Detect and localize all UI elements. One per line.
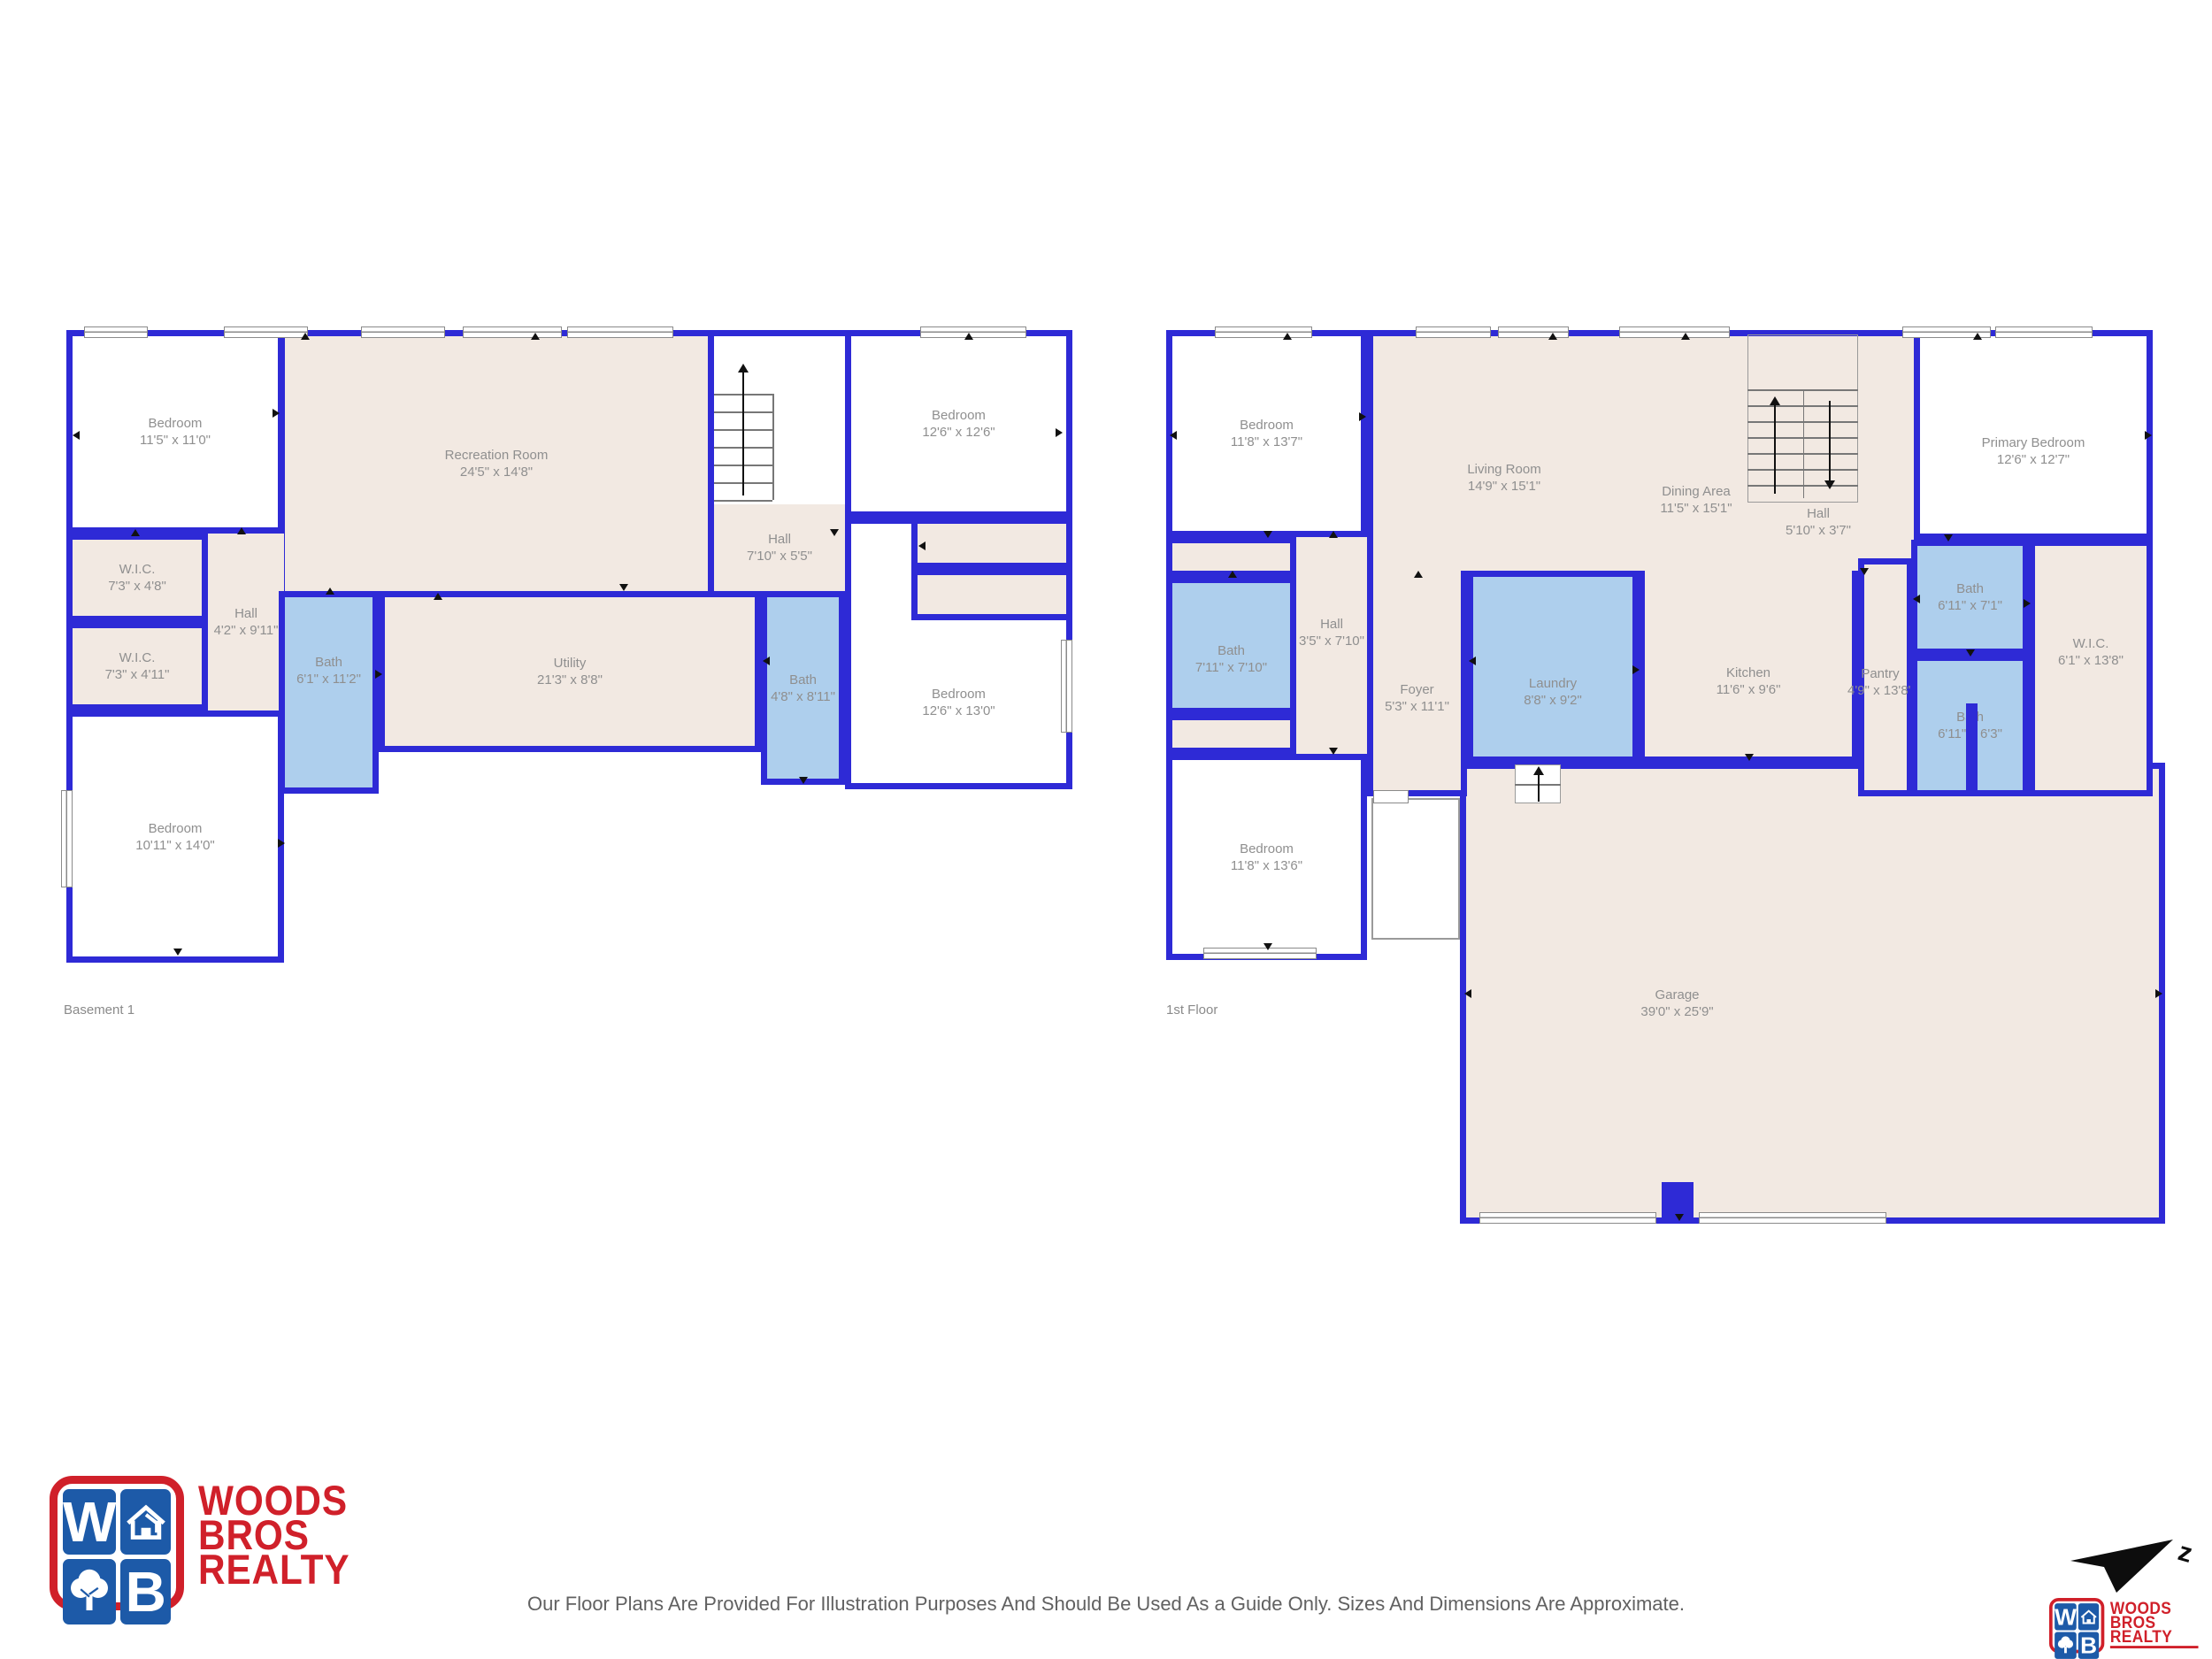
window-icon <box>1995 326 2093 338</box>
window-icon <box>1699 1212 1886 1224</box>
door-arrow-icon <box>1966 649 1975 657</box>
room-label: Primary Bedroom12'6" x 12'7" <box>1982 434 2085 468</box>
garage-room: Garage39'0" x 25'9" <box>1460 763 2165 1224</box>
window-icon <box>84 326 148 338</box>
door-arrow-icon <box>301 333 310 340</box>
room-name: Laundry <box>1524 675 1582 692</box>
window-icon <box>1215 326 1312 338</box>
room-dimensions: 11'5" x 11'0" <box>140 432 211 449</box>
room-label: Recreation Room24'5" x 14'8" <box>445 447 549 480</box>
door-arrow-icon <box>273 409 280 418</box>
door-arrow-icon <box>237 527 246 534</box>
logo-letter-w: W <box>63 1489 116 1555</box>
room-name: Hall <box>1299 616 1364 633</box>
woods-bros-logo: W B WOODS BROS REALTY <box>50 1476 367 1610</box>
door-arrow-icon <box>1263 943 1272 950</box>
room-label: Bedroom10'11" x 14'0" <box>135 820 215 854</box>
logo-letter-w: W <box>2055 1603 2077 1630</box>
room-label: Bedroom12'6" x 13'0" <box>922 686 995 719</box>
room-label: W.I.C.6'1" x 13'8" <box>2058 635 2124 669</box>
room-label: Bath6'11" x 7'1" <box>1938 580 2002 614</box>
wall-segment <box>1966 703 1978 792</box>
door-arrow-icon <box>1944 534 1953 541</box>
room-name: Living Room <box>1467 461 1540 478</box>
door-arrow-icon <box>964 333 973 340</box>
room-dimensions: 5'3" x 11'1" <box>1385 698 1449 715</box>
room-label: Bedroom11'8" x 13'6" <box>1231 841 1302 874</box>
room-label: Bath6'1" x 11'2" <box>296 654 361 687</box>
room-dimensions: 39'0" x 25'9" <box>1640 1003 1713 1020</box>
window-icon <box>61 790 73 887</box>
door-arrow-icon <box>2155 989 2162 998</box>
bedroom-room: Bedroom11'8" x 13'7" <box>1166 330 1367 537</box>
closet-area <box>714 330 845 504</box>
room-name: Bedroom <box>922 407 995 424</box>
door-arrow-icon <box>434 593 442 600</box>
window-icon <box>361 326 445 338</box>
window-icon <box>1619 326 1730 338</box>
window-icon <box>1203 948 1317 959</box>
room-dimensions: 4'9" x 13'8" <box>1847 682 1913 699</box>
closet-area <box>911 569 1072 620</box>
stair-arrow-line <box>1829 401 1831 485</box>
room-name: W.I.C. <box>105 649 170 666</box>
room-name: Primary Bedroom <box>1982 434 2085 451</box>
bedroom-room: Bedroom11'5" x 11'0" <box>66 330 284 534</box>
room-label: Utility21'3" x 8'8" <box>537 655 603 688</box>
room-dimensions: 11'5" x 15'1" <box>1660 500 1732 517</box>
room-dimensions: 21'3" x 8'8" <box>537 672 603 688</box>
room-name: W.I.C. <box>2058 635 2124 652</box>
room-label: Bedroom11'5" x 11'0" <box>140 415 211 449</box>
door-arrow-icon <box>1228 571 1237 578</box>
room-dimensions: 7'3" x 4'11" <box>105 666 170 683</box>
window-icon <box>1479 1212 1656 1224</box>
compass-letter: z <box>2175 1537 2196 1569</box>
room-name: Bedroom <box>1231 841 1302 857</box>
room-label: Hall7'10" x 5'5" <box>747 531 812 565</box>
bath-room: Bath4'8" x 8'11" <box>761 591 845 785</box>
bath-room: Bath6'11" x 7'1" <box>1911 540 2029 655</box>
room-name: Bedroom <box>140 415 211 432</box>
room-dimensions: 12'6" x 12'7" <box>1982 451 2085 468</box>
door-arrow-icon <box>1681 333 1690 340</box>
door-arrow-icon <box>1632 665 1640 674</box>
w-i-c-room: W.I.C.7'3" x 4'11" <box>66 622 208 710</box>
room-dimensions: 7'3" x 4'8" <box>108 578 166 595</box>
door-arrow-icon <box>278 839 285 848</box>
room-dimensions: 7'10" x 5'5" <box>747 548 812 565</box>
room-name: Kitchen <box>1717 664 1781 681</box>
window-icon <box>1416 326 1491 338</box>
door-arrow-icon <box>531 333 540 340</box>
room-name: Bath <box>296 654 361 671</box>
room-label: Bedroom11'8" x 13'7" <box>1231 417 1302 450</box>
foyer-room: Foyer5'3" x 11'1" <box>1367 571 1467 796</box>
stair-rail <box>772 394 774 500</box>
logo-house-icon <box>120 1489 171 1555</box>
room-name: Bath <box>1938 580 2002 597</box>
door-arrow-icon <box>1548 333 1557 340</box>
room-dimensions: 6'1" x 11'2" <box>296 671 361 687</box>
entry-stoop <box>1371 798 1460 940</box>
door-arrow-icon <box>619 584 628 591</box>
stair-arrow-icon <box>738 364 749 373</box>
door-arrow-icon <box>1056 428 1063 437</box>
room-dimensions: 10'11" x 14'0" <box>135 837 215 854</box>
room-label: Garage39'0" x 25'9" <box>1640 987 1713 1020</box>
door-arrow-icon <box>1860 568 1869 575</box>
door-arrow-icon <box>2145 431 2152 440</box>
door-arrow-icon <box>1283 333 1292 340</box>
room-label: Kitchen11'6" x 9'6" <box>1717 664 1781 698</box>
hall-label: Hall5'10" x 3'7" <box>1786 505 1851 539</box>
stair-arrow-line <box>742 373 744 495</box>
w-i-c-room: W.I.C.6'1" x 13'8" <box>2029 540 2153 796</box>
closet-area <box>1166 714 1296 754</box>
stair-rail <box>1803 389 1805 498</box>
door-arrow-icon <box>830 529 839 536</box>
logo-letter-b: B <box>2078 1632 2099 1659</box>
stair-arrow-icon <box>1533 766 1544 775</box>
door-arrow-icon <box>1170 431 1177 440</box>
door-arrow-icon <box>173 949 182 956</box>
room-label: Hall3'5" x 7'10" <box>1299 616 1364 649</box>
window-icon <box>1498 326 1569 338</box>
living-room-label: Living Room14'9" x 15'1" <box>1467 461 1540 495</box>
room-name: Bedroom <box>922 686 995 703</box>
room-name: Hall <box>747 531 812 548</box>
room-name: Bedroom <box>1231 417 1302 434</box>
wordmark-line: REALTY <box>2110 1629 2199 1643</box>
room-name: Bath <box>771 672 835 688</box>
north-arrow-icon: z <box>2062 1534 2203 1608</box>
room-label: Pantry4'9" x 13'8" <box>1847 665 1913 699</box>
room-name: Dining Area <box>1660 483 1732 500</box>
room-label: Hall4'2" x 9'11" <box>214 605 279 639</box>
door-arrow-icon <box>375 670 382 679</box>
door-arrow-icon <box>1359 412 1366 421</box>
room-dimensions: 14'9" x 15'1" <box>1467 478 1540 495</box>
hall-room: Hall4'2" x 9'11" <box>208 534 284 710</box>
room-label: W.I.C.7'3" x 4'11" <box>105 649 170 683</box>
door-arrow-icon <box>1913 595 1920 603</box>
door-arrow-icon <box>799 777 808 784</box>
room-name: Bath <box>1195 642 1267 659</box>
door-arrow-icon <box>326 588 334 595</box>
room-name: Foyer <box>1385 681 1449 698</box>
woods-bros-wordmark: WOODS BROS REALTY <box>198 1483 349 1586</box>
room-dimensions: 3'5" x 7'10" <box>1299 633 1364 649</box>
room-label: Bedroom12'6" x 12'6" <box>922 407 995 441</box>
room-name: Recreation Room <box>445 447 549 464</box>
stair-arrow-line <box>1538 775 1540 802</box>
room-dimensions: 7'11" x 7'10" <box>1195 659 1267 676</box>
wordmark-line: REALTY <box>198 1552 349 1586</box>
room-label: Bath4'8" x 8'11" <box>771 672 835 705</box>
door-arrow-icon <box>1263 531 1272 538</box>
stair-arrow-line <box>1774 405 1776 494</box>
window-icon <box>920 326 1026 338</box>
room-name: Utility <box>537 655 603 672</box>
door-arrow-icon <box>1329 531 1338 538</box>
bedroom-room: Bedroom10'11" x 14'0" <box>66 710 284 963</box>
woods-bros-logo-small: W B WOODS BROS REALTY <box>2049 1598 2208 1653</box>
door-arrow-icon <box>1973 333 1982 340</box>
logo-tree-icon <box>2055 1632 2077 1659</box>
utility-room: Utility21'3" x 8'8" <box>379 591 761 752</box>
door-arrow-icon <box>1329 748 1338 755</box>
room-label: W.I.C.7'3" x 4'8" <box>108 561 166 595</box>
window-icon <box>224 326 308 338</box>
logo-house-icon <box>2078 1603 2099 1630</box>
stair-arrow-icon <box>1770 396 1780 405</box>
door-arrow-icon <box>2024 599 2031 608</box>
bath-room: Bath7'11" x 7'10" <box>1166 577 1296 714</box>
w-i-c-room: W.I.C.7'3" x 4'8" <box>66 534 208 622</box>
pantry-room: Pantry4'9" x 13'8" <box>1858 558 1913 796</box>
closet-area <box>911 518 1072 569</box>
basement-floor-label: Basement 1 <box>64 1002 134 1018</box>
stair-arrow-icon <box>1824 480 1835 489</box>
front-door <box>1373 790 1409 803</box>
stair-tread <box>714 500 772 502</box>
door-arrow-icon <box>1414 571 1423 578</box>
room-dimensions: 12'6" x 12'6" <box>922 424 995 441</box>
room-name: Hall <box>1786 505 1851 522</box>
hall-room: Hall7'10" x 5'5" <box>714 504 845 591</box>
room-dimensions: 12'6" x 13'0" <box>922 703 995 719</box>
hall-room: Hall3'5" x 7'10" <box>1296 537 1367 754</box>
door-arrow-icon <box>1464 989 1471 998</box>
room-dimensions: 11'8" x 13'7" <box>1231 434 1302 450</box>
window-icon <box>463 326 562 338</box>
room-name: W.I.C. <box>108 561 166 578</box>
room-dimensions: 11'8" x 13'6" <box>1231 857 1302 874</box>
room-dimensions: 4'2" x 9'11" <box>214 622 279 639</box>
room-label: Laundry8'8" x 9'2" <box>1524 675 1582 709</box>
primary-bedroom-room: Primary Bedroom12'6" x 12'7" <box>1914 330 2153 540</box>
recreation-room-room: Recreation Room24'5" x 14'8" <box>279 330 714 591</box>
room-dimensions: 5'10" x 3'7" <box>1786 522 1851 539</box>
woods-bros-badge-icon: W B <box>50 1476 184 1610</box>
room-dimensions: 6'11" x 7'1" <box>1938 597 2002 614</box>
wordmark-underline <box>2110 1646 2199 1648</box>
room-label: Bath7'11" x 7'10" <box>1195 642 1267 676</box>
bath-room: Bath6'1" x 11'2" <box>279 591 379 794</box>
room-name: Garage <box>1640 987 1713 1003</box>
door-arrow-icon <box>1675 1214 1684 1221</box>
room-label: Foyer5'3" x 11'1" <box>1385 681 1449 715</box>
laundry-room: Laundry8'8" x 9'2" <box>1467 571 1639 763</box>
dining-area-label: Dining Area11'5" x 15'1" <box>1660 483 1732 517</box>
room-name: Pantry <box>1847 665 1913 682</box>
door-arrow-icon <box>1745 754 1754 761</box>
window-icon <box>567 326 673 338</box>
woods-bros-wordmark-small: WOODS BROS REALTY <box>2110 1601 2199 1648</box>
door-arrow-icon <box>918 541 926 550</box>
bedroom-room: Bedroom11'8" x 13'6" <box>1166 754 1367 960</box>
door-arrow-icon <box>73 431 80 440</box>
room-dimensions: 8'8" x 9'2" <box>1524 692 1582 709</box>
door-arrow-icon <box>1469 657 1476 665</box>
room-dimensions: 4'8" x 8'11" <box>771 688 835 705</box>
disclaimer-text: Our Floor Plans Are Provided For Illustr… <box>0 1593 2212 1616</box>
room-name: Hall <box>214 605 279 622</box>
door-arrow-icon <box>131 529 140 536</box>
floorplan-canvas: Bedroom11'5" x 11'0"Recreation Room24'5"… <box>0 0 2212 1659</box>
door-arrow-icon <box>763 657 770 665</box>
bedroom-room: Bedroom12'6" x 12'6" <box>845 330 1072 518</box>
room-dimensions: 6'1" x 13'8" <box>2058 652 2124 669</box>
room-dimensions: 24'5" x 14'8" <box>445 464 549 480</box>
first-floor-label: 1st Floor <box>1166 1002 1217 1018</box>
room-dimensions: 11'6" x 9'6" <box>1717 681 1781 698</box>
kitchen-room: Kitchen11'6" x 9'6" <box>1639 571 1858 763</box>
room-name: Bedroom <box>135 820 215 837</box>
woods-bros-badge-icon-small: W B <box>2049 1598 2104 1653</box>
window-icon <box>1061 640 1072 733</box>
